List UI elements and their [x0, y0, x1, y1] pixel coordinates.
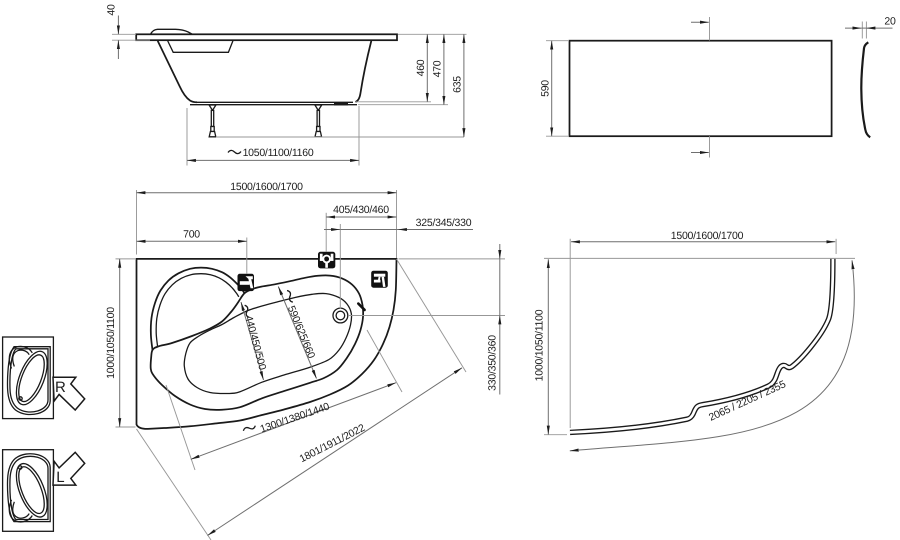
svg-text:440/450/500: 440/450/500 [242, 314, 268, 371]
svg-text:40: 40 [105, 4, 117, 16]
svg-text:635: 635 [452, 76, 464, 93]
svg-text:1000/1050/1100: 1000/1050/1100 [533, 309, 545, 381]
svg-text:L: L [56, 469, 64, 486]
svg-text:460: 460 [415, 59, 427, 76]
svg-text:R: R [55, 379, 66, 396]
svg-text:700: 700 [183, 229, 200, 241]
svg-text:325/345/330: 325/345/330 [416, 217, 472, 229]
svg-text:1500/1600/1700: 1500/1600/1700 [671, 230, 744, 242]
svg-text:470: 470 [432, 60, 444, 77]
svg-text:590/625/660: 590/625/660 [285, 304, 317, 360]
svg-text:20: 20 [884, 16, 896, 28]
svg-text:1801/1911/2022: 1801/1911/2022 [298, 422, 368, 465]
svg-text:405/430/460: 405/430/460 [333, 204, 389, 216]
svg-text:1000/1050/1100: 1000/1050/1100 [105, 307, 117, 379]
svg-text:1500/1600/1700: 1500/1600/1700 [230, 181, 303, 193]
svg-text:590: 590 [540, 80, 552, 97]
svg-text:1050/1100/1160: 1050/1100/1160 [243, 147, 314, 159]
svg-text:330/350/360: 330/350/360 [486, 335, 498, 391]
